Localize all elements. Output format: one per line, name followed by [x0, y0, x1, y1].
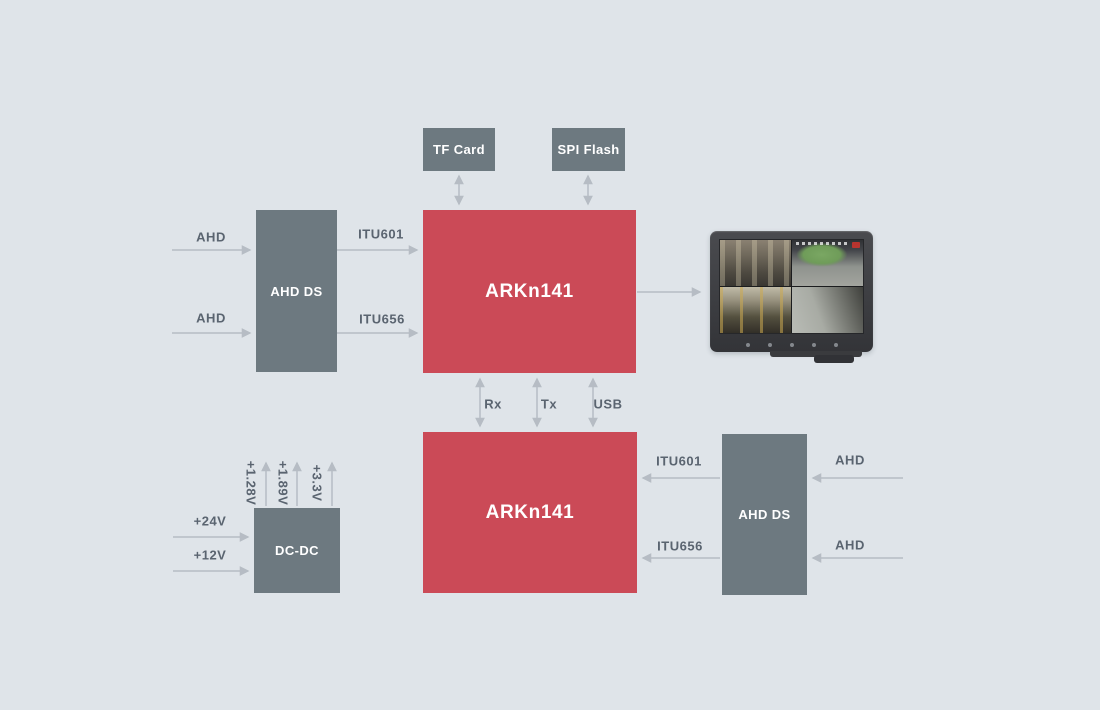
itu656-top-label: ITU656: [359, 312, 405, 327]
ahd-ds-top-label: AHD DS: [270, 284, 322, 299]
ahd-ds-bottom-block: AHD DS: [722, 434, 807, 595]
monitor-buttons-row: [710, 343, 873, 347]
monitor-quad-bus-interior-rear: [720, 287, 791, 333]
dc-dc-block: DC-DC: [254, 508, 340, 593]
monitor-quad-rear-bus-view: [792, 240, 863, 286]
spi-flash-label: SPI Flash: [557, 142, 619, 157]
monitor-stand-foot: [814, 355, 854, 363]
ahd-top-1-label: AHD: [196, 230, 226, 245]
arkn141-bottom-block: ARKn141: [423, 432, 637, 593]
itu601-top-label: ITU601: [358, 227, 404, 242]
ahd-bottom-1-label: AHD: [835, 453, 865, 468]
monitor-quad-street-view: [792, 287, 863, 333]
tf-card-block: TF Card: [423, 128, 495, 171]
itu601-bottom-label: ITU601: [656, 454, 702, 469]
rx-label: Rx: [484, 397, 502, 412]
monitor-button-icon: [768, 343, 772, 347]
v3-3-label: +3.3V: [310, 465, 325, 502]
tf-card-label: TF Card: [433, 142, 485, 157]
dc-dc-label: DC-DC: [275, 543, 319, 558]
arkn141-top-block: ARKn141: [423, 210, 636, 373]
ahd-ds-bottom-label: AHD DS: [738, 507, 790, 522]
v1-89-label: +1.89V: [276, 461, 291, 506]
arkn141-top-label: ARKn141: [485, 281, 574, 303]
block-diagram: TF Card SPI Flash AHD DS ARKn141 ARKn141…: [0, 0, 1100, 710]
tx-label: Tx: [541, 397, 557, 412]
timestamp-overlay: [796, 242, 847, 245]
monitor-screen: [719, 239, 864, 334]
itu656-bottom-label: ITU656: [657, 539, 703, 554]
monitor-button-icon: [812, 343, 816, 347]
quad-monitor-image: [710, 231, 873, 352]
v1-28-label: +1.28V: [244, 461, 259, 506]
monitor-button-icon: [790, 343, 794, 347]
v24-label: +24V: [194, 514, 227, 529]
v12-label: +12V: [194, 548, 227, 563]
ahd-bottom-2-label: AHD: [835, 538, 865, 553]
arkn141-bottom-label: ARKn141: [486, 502, 575, 524]
monitor-button-icon: [746, 343, 750, 347]
ahd-top-2-label: AHD: [196, 311, 226, 326]
spi-flash-block: SPI Flash: [552, 128, 625, 171]
monitor-quad-bus-interior-front: [720, 240, 791, 286]
usb-label: USB: [594, 397, 623, 412]
monitor-button-icon: [834, 343, 838, 347]
record-indicator: [852, 242, 860, 248]
ahd-ds-top-block: AHD DS: [256, 210, 337, 372]
